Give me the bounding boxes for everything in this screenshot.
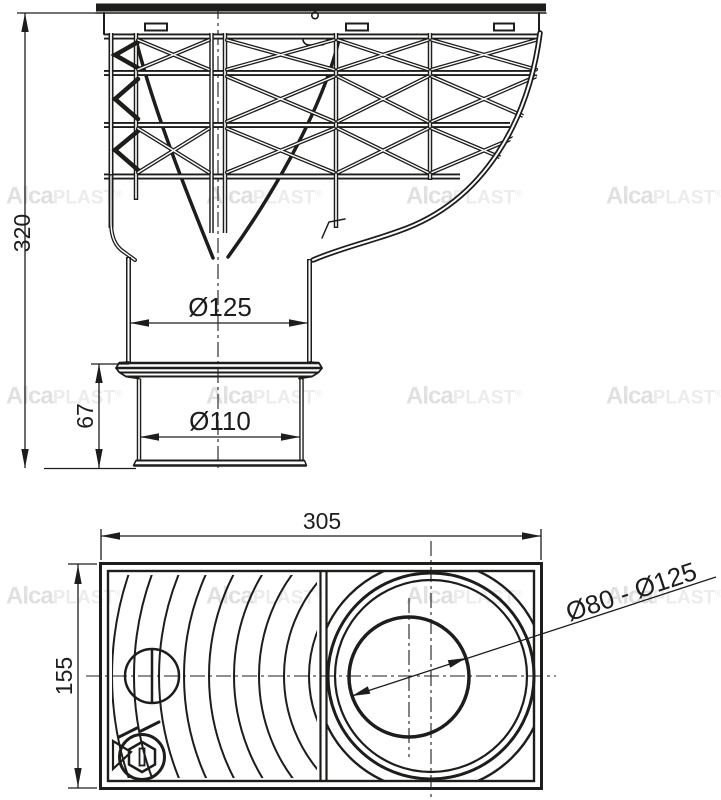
- dim-lower-pipe-diameter: Ø110: [140, 406, 300, 441]
- dim-label-305: 305: [303, 508, 341, 534]
- dim-label-d110: Ø110: [189, 406, 251, 436]
- dim-label-67: 67: [72, 403, 98, 429]
- grate-lid: [96, 4, 546, 12]
- dim-plan-width: 305: [101, 508, 541, 560]
- plan-view: 305 155: [51, 357, 721, 800]
- funnel-left: [111, 176, 135, 260]
- dim-label-155: 155: [51, 657, 77, 695]
- rim-tab: [494, 24, 514, 31]
- outlet-ledge: [322, 219, 345, 238]
- rim-tab: [346, 24, 368, 31]
- dim-label-d125: Ø125: [188, 292, 252, 322]
- drawing-svg: 320 67 Ø125 Ø110: [0, 0, 721, 800]
- technical-drawing-canvas: AlcaPLAST® AlcaPLAST® AlcaPLAST® AlcaPLA…: [0, 0, 721, 800]
- dim-label-outlet-range: Ø80 - Ø125: [562, 556, 700, 627]
- dim-spigot-height: 67: [72, 364, 129, 468]
- side-elevation-view: 320 67 Ø125 Ø110: [9, 4, 546, 472]
- dim-upper-pipe-diameter: Ø125: [130, 292, 308, 327]
- pipe-collar: [116, 362, 322, 379]
- dim-overall-height: 320: [9, 13, 136, 469]
- rim-tab: [145, 24, 167, 31]
- rim-sides: [104, 13, 539, 34]
- dim-label-320: 320: [9, 214, 35, 252]
